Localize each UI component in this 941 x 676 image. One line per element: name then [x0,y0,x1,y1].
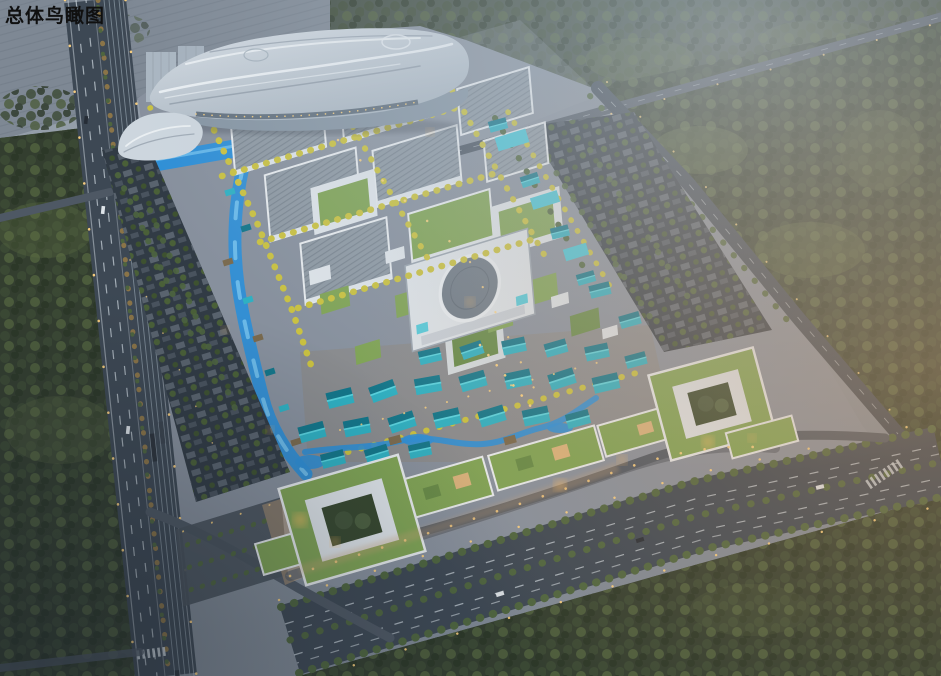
atmosphere-haze [0,0,941,676]
birdseye-rendering: 总体鸟瞰图 [0,0,941,676]
page-title: 总体鸟瞰图 [5,4,105,28]
rendering-canvas [0,0,941,676]
